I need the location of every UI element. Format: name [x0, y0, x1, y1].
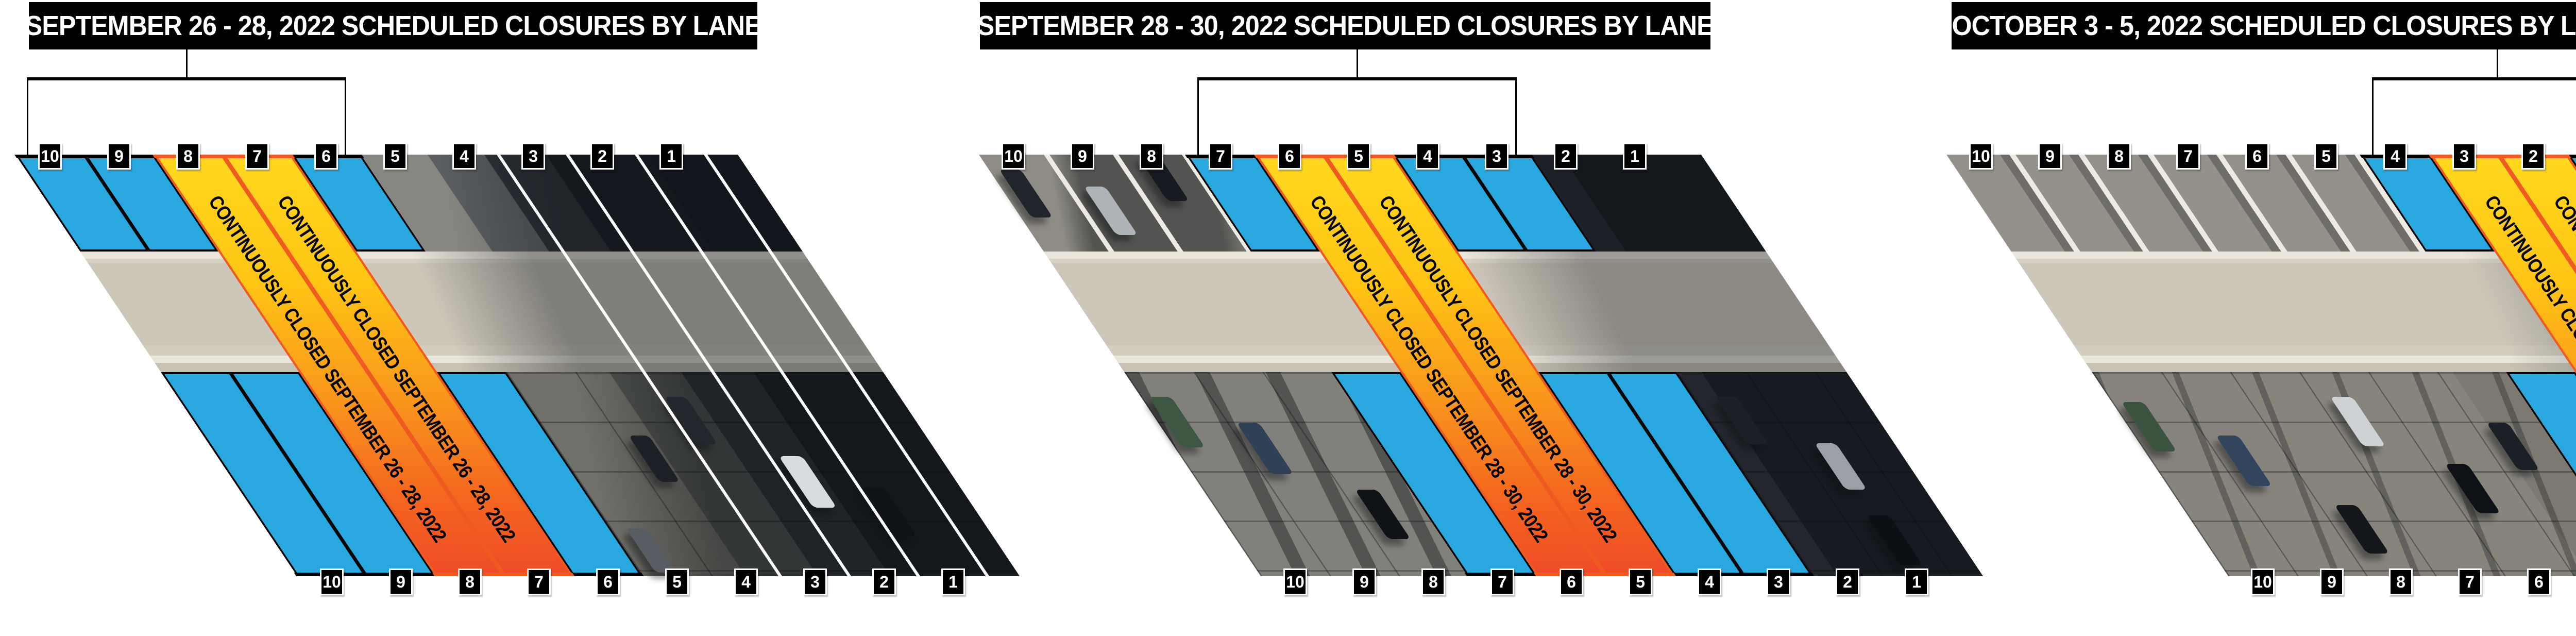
roadway: [979, 155, 1983, 576]
lane-number-label-bottom: 1: [941, 568, 965, 595]
lane-number-label-bottom: 7: [2458, 568, 2482, 595]
closure-panel-oct-3-5: OCTOBER 3 - 5, 2022 SCHEDULED CLOSURES B…: [1931, 0, 2576, 636]
lane-number-label-bottom: 4: [734, 568, 758, 595]
lane-number-label-top: 3: [2452, 143, 2476, 170]
lane-number-label-top: 8: [1140, 143, 1163, 170]
roadway: [15, 155, 1020, 576]
closure-panel-sept-28-30: SEPTEMBER 28 - 30, 2022 SCHEDULED CLOSUR…: [963, 0, 1984, 636]
lane-number-label-top: 10: [1002, 143, 1025, 170]
lane-number-label-top: 1: [1623, 143, 1647, 170]
lane-number-label-bottom: 8: [1421, 568, 1445, 595]
lane-number-label-top: 9: [107, 143, 131, 170]
bridge-deck: [2011, 252, 2576, 372]
lane-number-label-bottom: 7: [527, 568, 551, 595]
lane-number-label-bottom: 7: [1490, 568, 1514, 595]
lane-number-label-top: 4: [2383, 143, 2407, 170]
lane-number-label-top: 2: [590, 143, 614, 170]
bracket-drop-left: [27, 77, 28, 158]
lane-number-label-bottom: 3: [1767, 568, 1790, 595]
lane-number-label-bottom: 1: [1905, 568, 1928, 595]
panel-title-box: SEPTEMBER 26 - 28, 2022 SCHEDULED CLOSUR…: [29, 2, 757, 49]
lane-number-label-bottom: 10: [2251, 568, 2275, 595]
lane-number-label-top: 5: [383, 143, 407, 170]
lane-number-label-bottom: 3: [803, 568, 827, 595]
bracket-bar: [27, 77, 346, 80]
lane-number-label-bottom: 9: [2320, 568, 2344, 595]
lane-number-label-top: 2: [1554, 143, 1578, 170]
lane-number-label-top: 6: [314, 143, 338, 170]
bracket-bar: [1197, 77, 1517, 80]
lane-number-label-top: 10: [38, 143, 62, 170]
lane-number-label-bottom: 6: [596, 568, 620, 595]
lane-number-label-top: 7: [2176, 143, 2200, 170]
lane-number-label-top: 8: [176, 143, 200, 170]
lane-number-label-bottom: 6: [2527, 568, 2551, 595]
lane-number-label-top: 9: [1071, 143, 1094, 170]
closure-infographic: SEPTEMBER 26 - 28, 2022 SCHEDULED CLOSUR…: [0, 0, 2576, 636]
lane-number-label-bottom: 5: [1629, 568, 1652, 595]
bracket-bar: [2372, 77, 2576, 80]
lane-number-label-top: 5: [2314, 143, 2338, 170]
closure-panel-sept-26-28: SEPTEMBER 26 - 28, 2022 SCHEDULED CLOSUR…: [0, 0, 1020, 636]
lane-number-label-top: 2: [2521, 143, 2545, 170]
lane-number-label-bottom: 5: [665, 568, 689, 595]
bracket-connector-line: [186, 49, 188, 78]
panel-title: OCTOBER 3 - 5, 2022 SCHEDULED CLOSURES B…: [1952, 10, 2576, 42]
bracket-connector-line: [1357, 49, 1358, 78]
lane-number-label-top: 7: [245, 143, 269, 170]
bracket-drop-right: [1515, 77, 1517, 158]
lane-number-label-top: 6: [1278, 143, 1301, 170]
bracket-drop-left: [2372, 77, 2374, 158]
lane-number-label-bottom: 4: [1698, 568, 1721, 595]
panel-title: SEPTEMBER 26 - 28, 2022 SCHEDULED CLOSUR…: [25, 10, 761, 42]
panel-title: SEPTEMBER 28 - 30, 2022 SCHEDULED CLOSUR…: [977, 10, 1714, 42]
lane-number-label-top: 4: [1416, 143, 1439, 170]
lane-number-label-bottom: 6: [1560, 568, 1583, 595]
lane-number-label-top: 4: [452, 143, 476, 170]
lane-number-label-top: 1: [659, 143, 683, 170]
lane-number-label-bottom: 2: [1836, 568, 1859, 595]
lane-number-label-top: 6: [2245, 143, 2269, 170]
bracket-connector-line: [2497, 49, 2498, 78]
lane-number-label-bottom: 9: [1352, 568, 1376, 595]
bridge-deck: [80, 252, 884, 372]
lane-number-label-bottom: 10: [320, 568, 344, 595]
lane-number-label-bottom: 10: [1283, 568, 1307, 595]
roadway: [1946, 155, 2576, 576]
panel-title-box: SEPTEMBER 28 - 30, 2022 SCHEDULED CLOSUR…: [980, 2, 1710, 49]
bracket-drop-left: [1197, 77, 1199, 158]
lane-number-label-bottom: 8: [2389, 568, 2413, 595]
panel-title-box: OCTOBER 3 - 5, 2022 SCHEDULED CLOSURES B…: [1952, 2, 2576, 49]
lane-number-label-top: 3: [521, 143, 545, 170]
lane-number-label-top: 8: [2107, 143, 2131, 170]
lane-number-label-top: 7: [1209, 143, 1232, 170]
lane-number-label-bottom: 9: [389, 568, 413, 595]
lane-number-label-top: 10: [1969, 143, 1993, 170]
lane-number-label-top: 5: [1347, 143, 1370, 170]
bracket-drop-right: [345, 77, 346, 158]
lane-number-label-top: 3: [1485, 143, 1509, 170]
lane-number-label-top: 9: [2038, 143, 2062, 170]
lane-number-label-bottom: 2: [872, 568, 896, 595]
lane-number-label-bottom: 8: [458, 568, 482, 595]
